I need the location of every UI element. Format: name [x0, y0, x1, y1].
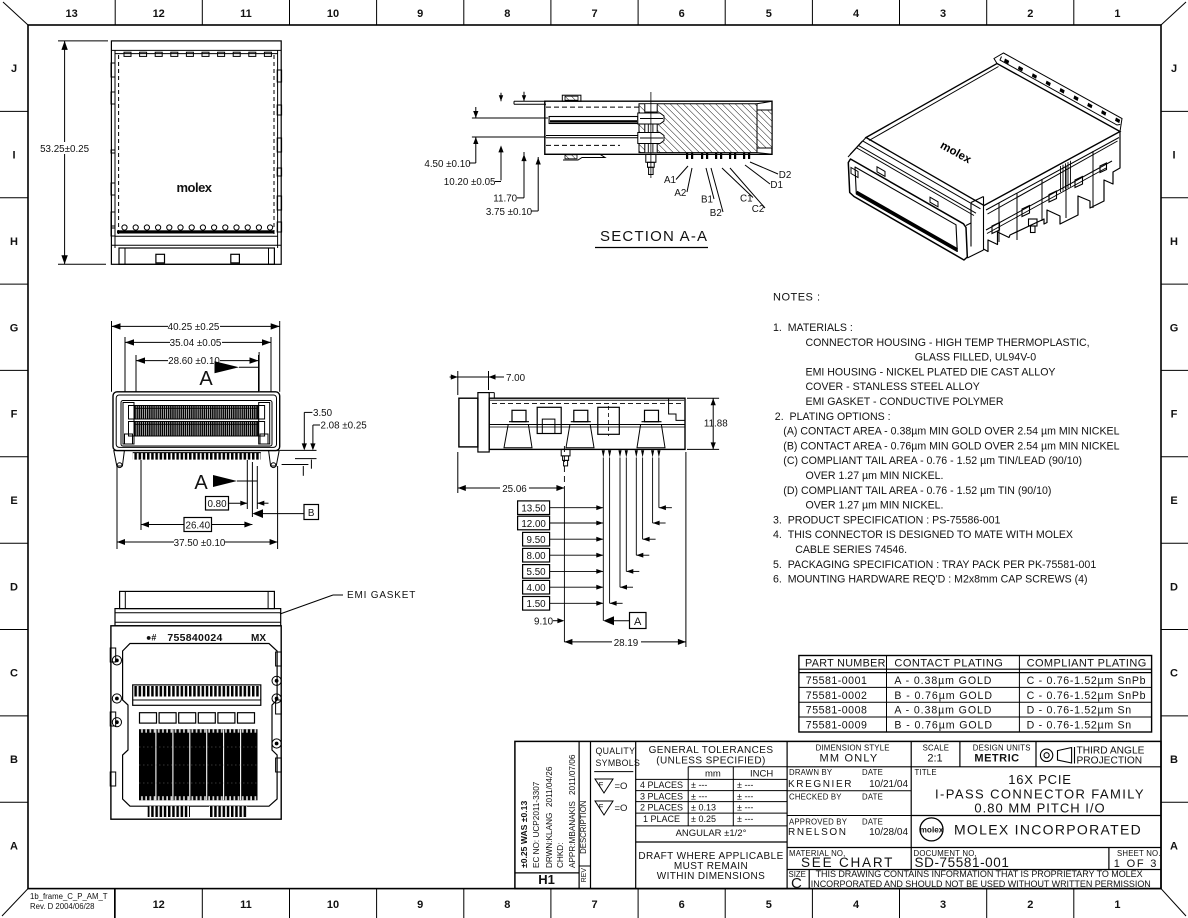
svg-text:(D) COMPLIANT TAIL AREA - 0.76: (D) COMPLIANT TAIL AREA - 0.76 - 1.52 µm… [783, 485, 1051, 497]
svg-text:C: C [10, 668, 18, 680]
svg-text:D1: D1 [770, 180, 783, 191]
svg-text:mm: mm [705, 768, 721, 779]
svg-text:9.50: 9.50 [527, 535, 547, 546]
svg-text:25.06: 25.06 [502, 484, 527, 495]
svg-text:4.00: 4.00 [527, 583, 547, 594]
svg-text:OVER 1.27 µm MIN NICKEL.: OVER 1.27 µm MIN NICKEL. [806, 470, 944, 482]
svg-text:10.20 ±0.05: 10.20 ±0.05 [444, 177, 496, 188]
svg-text:28.60 ±0.10: 28.60 ±0.10 [168, 356, 220, 367]
svg-text:B: B [10, 754, 18, 766]
svg-text:CABLE SERIES 74546.: CABLE SERIES 74546. [795, 544, 907, 556]
svg-text:H: H [1170, 236, 1178, 248]
svg-text:ANGULAR ±1/2°: ANGULAR ±1/2° [676, 828, 747, 839]
svg-text:REV: REV [581, 868, 588, 883]
svg-text:75581-0008: 75581-0008 [806, 705, 868, 717]
svg-text:DIMENSION STYLE: DIMENSION STYLE [816, 743, 890, 752]
svg-text:28.19: 28.19 [614, 638, 639, 649]
svg-text:2: 2 [1027, 8, 1033, 20]
svg-text:TITLE: TITLE [915, 768, 937, 777]
svg-text:75581-0001: 75581-0001 [806, 675, 868, 687]
svg-text:D: D [1170, 581, 1178, 593]
svg-text:3. PRODUCT SPECIFICATION : PS: 3. PRODUCT SPECIFICATION : PS-75586-001 [773, 514, 1001, 526]
svg-text:H1: H1 [538, 872, 555, 887]
svg-text:C: C [791, 875, 802, 892]
svg-text:7.00: 7.00 [506, 373, 526, 384]
svg-text:A: A [1170, 840, 1178, 852]
svg-text:± 0.25: ± 0.25 [691, 814, 716, 824]
svg-text:± 0.13: ± 0.13 [691, 802, 716, 812]
svg-text:± ---: ± --- [737, 802, 753, 812]
svg-text:EMI GASKET: EMI GASKET [347, 590, 416, 601]
svg-text:11.88: 11.88 [704, 419, 728, 430]
svg-text:=O: =O [615, 781, 628, 792]
svg-text:4. THIS CONNECTOR IS DESIGNED: 4. THIS CONNECTOR IS DESIGNED TO MATE WI… [773, 529, 1073, 541]
svg-text:OVER 1.27 µm MIN NICKEL.: OVER 1.27 µm MIN NICKEL. [806, 500, 944, 512]
svg-text:A1: A1 [664, 175, 676, 186]
svg-text:A: A [634, 616, 642, 628]
svg-text:75581-0009: 75581-0009 [806, 719, 868, 731]
svg-text:4: 4 [853, 8, 860, 20]
svg-text:C: C [1170, 668, 1178, 680]
svg-text:B - 0.76µm GOLD: B - 0.76µm GOLD [894, 719, 993, 731]
svg-text:B2: B2 [710, 208, 722, 219]
svg-text:METRIC: METRIC [974, 753, 1019, 765]
svg-text:4: 4 [853, 899, 860, 911]
svg-text:6: 6 [679, 8, 685, 20]
svg-text:MM ONLY: MM ONLY [820, 753, 879, 765]
svg-text:SCALE: SCALE [923, 743, 950, 752]
svg-text:A: A [194, 472, 208, 494]
svg-text:11: 11 [240, 899, 252, 911]
svg-text:2 PLACES: 2 PLACES [640, 802, 683, 812]
svg-text:40.25 ±0.25: 40.25 ±0.25 [168, 322, 220, 333]
svg-text:NOTES :: NOTES : [773, 291, 821, 303]
svg-text:± ---: ± --- [737, 814, 753, 824]
svg-text:26.40: 26.40 [186, 521, 211, 532]
svg-text:CHECKED BY: CHECKED BY [789, 793, 842, 802]
svg-text:D - 0.76-1.52µm Sn: D - 0.76-1.52µm Sn [1027, 705, 1132, 717]
svg-text:A - 0.38µm GOLD: A - 0.38µm GOLD [894, 705, 992, 717]
svg-text:(UNLESS SPECIFIED): (UNLESS SPECIFIED) [656, 756, 765, 767]
svg-text:DATE: DATE [862, 768, 883, 777]
svg-text:molex: molex [920, 826, 944, 835]
svg-text:DESIGN UNITS: DESIGN UNITS [973, 743, 1031, 752]
svg-text:B: B [308, 508, 315, 519]
svg-text:WITHIN DIMENSIONS: WITHIN DIMENSIONS [657, 871, 765, 882]
svg-text:755840024: 755840024 [167, 632, 222, 644]
svg-text:INCORPORATED AND SHOULD NOT BE: INCORPORATED AND SHOULD NOT BE USED WITH… [811, 879, 1151, 889]
svg-text:B - 0.76µm GOLD: B - 0.76µm GOLD [894, 690, 993, 702]
svg-text:1b_frame_C_P_AM_T: 1b_frame_C_P_AM_T [30, 892, 108, 901]
svg-text:4 PLACES: 4 PLACES [640, 780, 683, 790]
svg-text:5: 5 [766, 899, 772, 911]
svg-text:3 PLACES: 3 PLACES [640, 791, 683, 801]
svg-text:F: F [11, 409, 18, 421]
svg-text:D2: D2 [779, 170, 792, 181]
svg-text:12: 12 [153, 899, 165, 911]
svg-text:3.75 ±0.10: 3.75 ±0.10 [486, 207, 533, 218]
svg-text:H: H [10, 236, 18, 248]
svg-text:(C) COMPLIANT TAIL AREA - 0.76: (C) COMPLIANT TAIL AREA - 0.76 - 1.52 µm… [783, 455, 1082, 467]
svg-text:8: 8 [504, 899, 510, 911]
svg-text:APPR:MBANAKIS: APPR:MBANAKIS [568, 801, 577, 868]
svg-text:1: 1 [1114, 899, 1120, 911]
svg-text:(A) CONTACT AREA - 0.38µm MIN: (A) CONTACT AREA - 0.38µm MIN GOLD OVER … [783, 426, 1119, 438]
svg-text:J: J [1171, 63, 1177, 75]
svg-text:10/28/04: 10/28/04 [869, 827, 908, 838]
svg-text:SECTION A-A: SECTION A-A [600, 228, 708, 245]
svg-text:35.04 ±0.05: 35.04 ±0.05 [170, 338, 222, 349]
svg-text:4.50 ±0.10: 4.50 ±0.10 [424, 159, 471, 170]
svg-text:3.50: 3.50 [313, 408, 333, 419]
svg-text:3: 3 [940, 899, 946, 911]
svg-text:EC NO: UCP2011-3307: EC NO: UCP2011-3307 [532, 781, 541, 868]
svg-text:F: F [599, 780, 604, 789]
svg-text:DESCRIPTION: DESCRIPTION [579, 801, 588, 854]
svg-text:2011/04/26: 2011/04/26 [545, 766, 554, 807]
svg-text:8: 8 [504, 8, 510, 20]
svg-text:7: 7 [591, 899, 597, 911]
svg-text:(B) CONTACT AREA - 0.76µm MIN: (B) CONTACT AREA - 0.76µm MIN GOLD OVER … [783, 440, 1119, 452]
svg-text:C - 0.76-1.52µm SnPb: C - 0.76-1.52µm SnPb [1027, 690, 1147, 702]
svg-text:11: 11 [240, 8, 252, 20]
svg-text:GENERAL TOLERANCES: GENERAL TOLERANCES [649, 745, 774, 756]
svg-text:●#: ●# [146, 633, 156, 643]
svg-text:C - 0.76-1.52µm SnPb: C - 0.76-1.52µm SnPb [1027, 675, 1147, 687]
svg-text:INCH: INCH [750, 768, 773, 779]
svg-text:11.70: 11.70 [493, 193, 517, 204]
svg-text:7: 7 [591, 8, 597, 20]
svg-text:MX: MX [251, 633, 266, 644]
svg-text:1.50: 1.50 [527, 599, 547, 610]
svg-text:0.80 MM PITCH I/O: 0.80 MM PITCH I/O [974, 801, 1105, 816]
svg-text:J: J [11, 63, 17, 75]
svg-text:16X PCIE: 16X PCIE [1008, 772, 1071, 787]
svg-text:1 PLACE: 1 PLACE [643, 814, 680, 824]
svg-text:5. PACKAGING SPECIFICATION :: 5. PACKAGING SPECIFICATION : TRAY PACK P… [773, 559, 1096, 571]
svg-text:13: 13 [65, 8, 77, 20]
svg-text:=O: =O [615, 803, 628, 814]
svg-text:A: A [10, 840, 18, 852]
svg-text:75581-0002: 75581-0002 [806, 690, 868, 702]
svg-text:13.50: 13.50 [521, 504, 546, 515]
svg-text:2. PLATING OPTIONS :: 2. PLATING OPTIONS : [775, 411, 891, 423]
svg-text:SHEET NO.: SHEET NO. [1117, 849, 1161, 858]
svg-text:12.00: 12.00 [521, 519, 546, 530]
svg-text:SD-75581-001: SD-75581-001 [915, 855, 1010, 870]
svg-text:COMPLIANT PLATING: COMPLIANT PLATING [1027, 658, 1147, 670]
svg-text:RNELSON: RNELSON [788, 827, 848, 838]
svg-text:CONTACT PLATING: CONTACT PLATING [894, 658, 1003, 670]
svg-text:6. MOUNTING HARDWARE REQ'D :: 6. MOUNTING HARDWARE REQ'D : M2x8mm CAP … [773, 574, 1088, 586]
svg-text:CONNECTOR HOUSING - HIGH TEMP: CONNECTOR HOUSING - HIGH TEMP THERMOPLAS… [806, 337, 1090, 349]
svg-text:DATE: DATE [862, 793, 883, 802]
svg-text:APPROVED BY: APPROVED BY [789, 818, 848, 827]
svg-text:THIS DRAWING CONTAINS INFORMAT: THIS DRAWING CONTAINS INFORMATION THAT I… [816, 869, 1143, 879]
svg-text:12: 12 [153, 8, 165, 20]
svg-text:Rev. D 2004/06/28: Rev. D 2004/06/28 [30, 902, 94, 911]
svg-text:B1: B1 [701, 195, 713, 206]
svg-text:10: 10 [327, 8, 339, 20]
svg-text:B: B [1170, 754, 1178, 766]
svg-text:9: 9 [417, 899, 423, 911]
svg-text:37.50 ±0.10: 37.50 ±0.10 [174, 538, 226, 549]
svg-text:2: 2 [1027, 899, 1033, 911]
svg-text:± ---: ± --- [691, 780, 707, 790]
svg-text:CHKD:: CHKD: [556, 843, 565, 868]
svg-text:I-PASS CONNECTOR FAMILY: I-PASS CONNECTOR FAMILY [935, 786, 1145, 801]
svg-text:8.00: 8.00 [527, 551, 547, 562]
svg-text:molex: molex [176, 180, 212, 195]
svg-text:1. MATERIALS :: 1. MATERIALS : [773, 322, 853, 334]
svg-text:GLASS FILLED, UL94V-0: GLASS FILLED, UL94V-0 [915, 352, 1036, 364]
svg-text:6: 6 [679, 899, 685, 911]
svg-text:D - 0.76-1.52µm Sn: D - 0.76-1.52µm Sn [1027, 719, 1132, 731]
svg-text:PART NUMBER: PART NUMBER [805, 658, 886, 670]
svg-text:53.25±0.25: 53.25±0.25 [40, 144, 90, 155]
svg-text:9.10: 9.10 [534, 617, 554, 628]
svg-text:EMI GASKET - CONDUCTIVE POLYME: EMI GASKET - CONDUCTIVE POLYMER [806, 396, 1004, 408]
svg-text:MOLEX INCORPORATED: MOLEX INCORPORATED [954, 822, 1142, 838]
svg-text:DRAWN BY: DRAWN BY [789, 768, 833, 777]
svg-text:G: G [1170, 322, 1179, 334]
svg-text:10: 10 [327, 899, 339, 911]
svg-text:5.50: 5.50 [527, 567, 547, 578]
svg-text:5: 5 [766, 8, 772, 20]
svg-text:SEE CHART: SEE CHART [801, 855, 894, 870]
svg-text:9: 9 [417, 8, 423, 20]
svg-text:2011/07/06: 2011/07/06 [568, 754, 577, 795]
svg-text:F: F [599, 802, 604, 811]
svg-text:E: E [10, 495, 17, 507]
svg-text:D: D [10, 581, 18, 593]
svg-text:0.80: 0.80 [207, 499, 227, 510]
svg-text:QUALITY: QUALITY [596, 746, 636, 756]
svg-text:± ---: ± --- [737, 780, 753, 790]
svg-text:DRWN:KLANG: DRWN:KLANG [545, 813, 554, 868]
svg-text:A - 0.38µm GOLD: A - 0.38µm GOLD [894, 675, 992, 687]
svg-text:10/21/04: 10/21/04 [869, 779, 908, 790]
svg-text:1 OF 3: 1 OF 3 [1114, 858, 1158, 870]
svg-text:PROJECTION: PROJECTION [1077, 756, 1143, 767]
svg-text:E: E [1170, 495, 1177, 507]
svg-text:2.08 ±0.25: 2.08 ±0.25 [321, 421, 368, 432]
svg-text:KREGNIER: KREGNIER [788, 779, 853, 790]
svg-text:2:1: 2:1 [927, 753, 942, 765]
svg-text:±0.25 WAS ±0.13: ±0.25 WAS ±0.13 [519, 801, 529, 868]
svg-text:3: 3 [940, 8, 946, 20]
svg-text:EMI HOUSING - NICKEL PLATED DI: EMI HOUSING - NICKEL PLATED DIE CAST ALL… [806, 366, 1056, 378]
svg-text:SYMBOLS: SYMBOLS [596, 758, 641, 768]
svg-text:G: G [10, 322, 19, 334]
svg-text:± ---: ± --- [737, 791, 753, 801]
svg-text:1: 1 [1114, 8, 1120, 20]
svg-text:DATE: DATE [862, 818, 883, 827]
svg-text:I: I [12, 150, 15, 162]
svg-text:A2: A2 [674, 188, 686, 199]
svg-text:A: A [199, 368, 213, 390]
svg-text:I: I [1172, 150, 1175, 162]
svg-text:COVER - STANLESS STEEL ALLOY: COVER - STANLESS STEEL ALLOY [806, 381, 980, 393]
svg-text:F: F [1171, 409, 1178, 421]
svg-text:± ---: ± --- [691, 791, 707, 801]
